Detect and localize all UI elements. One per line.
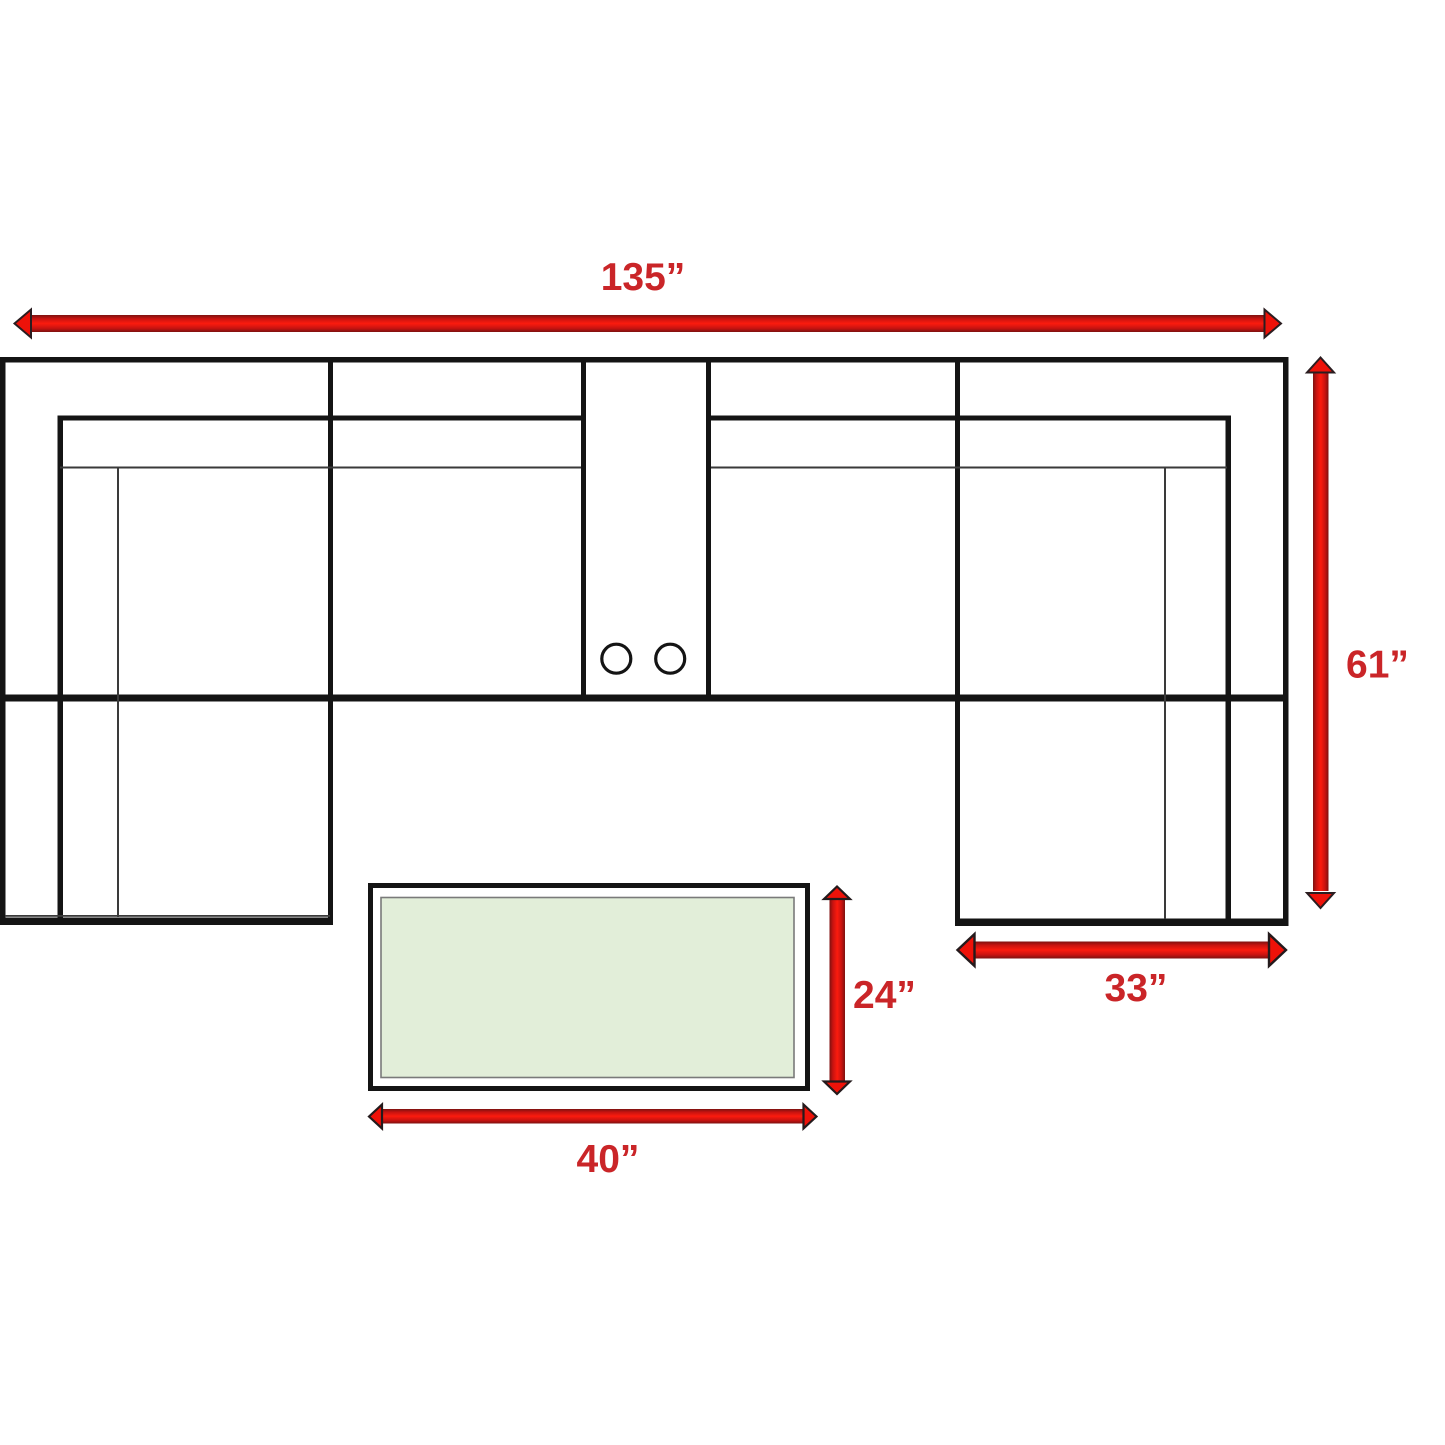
svg-text:40”: 40”: [577, 1138, 640, 1181]
svg-text:33”: 33”: [1105, 967, 1168, 1010]
svg-text:24”: 24”: [853, 974, 916, 1017]
svg-text:135”: 135”: [601, 256, 686, 299]
svg-text:61”: 61”: [1346, 644, 1409, 687]
